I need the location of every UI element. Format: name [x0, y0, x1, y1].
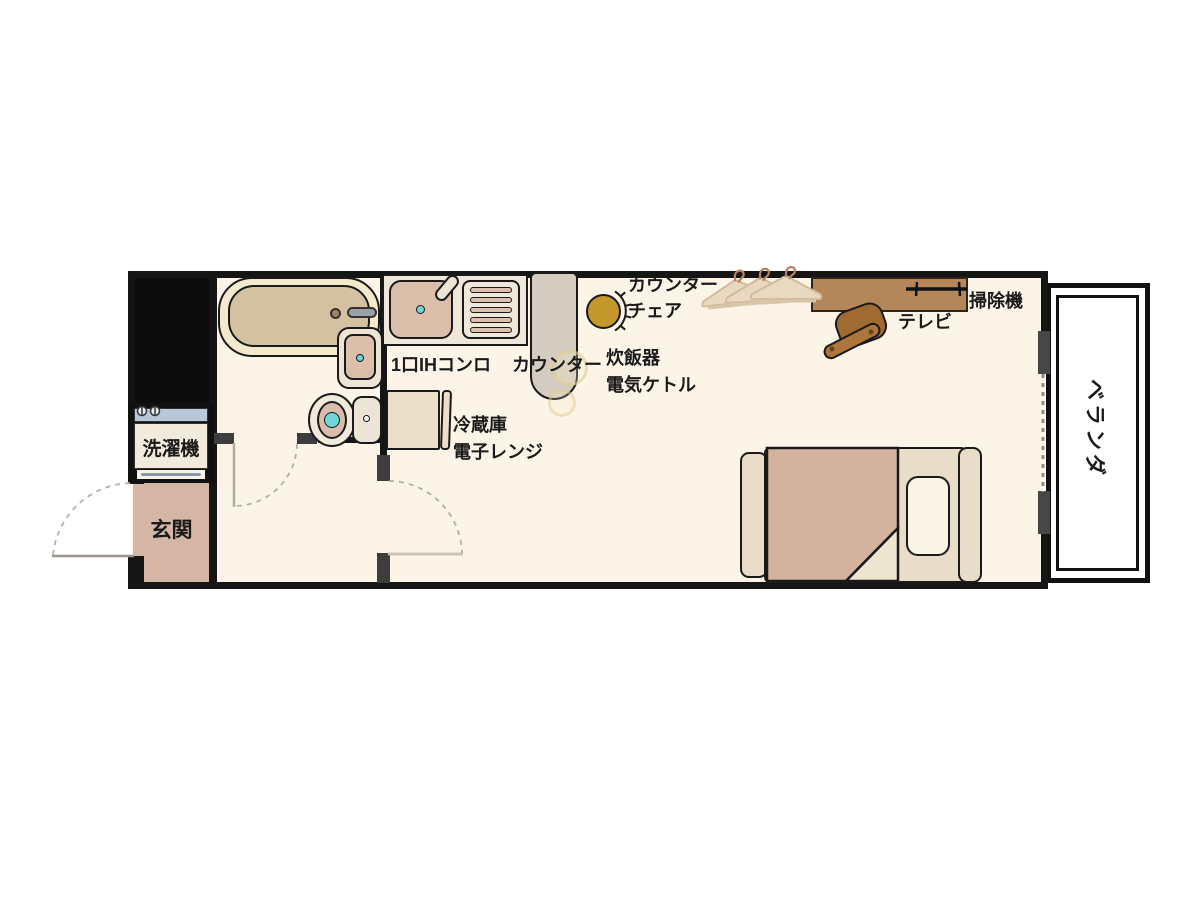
rice-cooker-label: 炊飯器	[606, 345, 696, 372]
ih-stove-grate	[470, 307, 512, 313]
desk-icon	[811, 277, 968, 312]
ih-stove-grate	[470, 317, 512, 323]
floor-plan: 洗濯機 玄関 1口IHコンロ カウンター カウンター チェア 炊飯器 電気ケトル…	[0, 0, 1200, 900]
pillow-icon	[906, 476, 950, 556]
counter-chair-label-line1: カウンター	[628, 272, 718, 298]
wall-right-upper	[1041, 271, 1048, 332]
entrance-jamb-bottom	[128, 556, 144, 586]
washing-machine-panel	[134, 408, 208, 422]
wall-bottom	[128, 582, 1048, 589]
microwave-label: 電子レンジ	[453, 439, 543, 466]
bathtub-drain	[330, 308, 341, 319]
toilet-water	[324, 412, 340, 428]
tv-label: テレビ	[898, 309, 952, 335]
vacuum-label: 掃除機	[969, 288, 1023, 314]
washing-machine-lid-handle	[141, 473, 201, 476]
ih-stove-grate	[470, 287, 512, 293]
room-door-jamb-top	[377, 455, 390, 481]
washing-machine-label: 洗濯機	[134, 437, 208, 463]
balcony-label: ベランダ	[1083, 374, 1107, 484]
washbasin-drain	[356, 354, 364, 362]
entrance-door-icon	[52, 483, 134, 556]
void-area	[133, 275, 211, 405]
bathtub-handrail	[347, 307, 377, 318]
electric-kettle-icon	[548, 389, 576, 417]
counter-label: カウンター	[512, 352, 602, 378]
entrance-label: 玄関	[133, 518, 210, 544]
counter-chair-label: カウンター チェア	[628, 272, 718, 324]
ih-stove-label: 1口IHコンロ	[391, 352, 491, 378]
ih-stove-grate	[470, 297, 512, 303]
wall-right-lower	[1041, 533, 1048, 589]
balcony-window-frame-top	[1038, 331, 1050, 374]
fridge-microwave-label: 冷蔵庫 電子レンジ	[453, 412, 543, 466]
refrigerator-label: 冷蔵庫	[453, 412, 543, 439]
balcony-window-frame-bottom	[1038, 491, 1050, 534]
refrigerator-door	[440, 390, 452, 450]
kitchen-sink-drain	[416, 305, 425, 314]
bed-headboard	[958, 447, 982, 583]
electric-kettle-label: 電気ケトル	[606, 372, 696, 399]
toilet-tank-button	[363, 415, 370, 422]
refrigerator-icon	[386, 390, 440, 450]
ih-stove-grate	[470, 327, 512, 333]
rice-cooker-kettle-label: 炊飯器 電気ケトル	[606, 345, 696, 399]
bathroom-door-jamb-left	[212, 433, 234, 444]
counter-chair-icon	[586, 294, 621, 329]
room-door-jamb-bottom	[377, 553, 390, 583]
counter-chair-label-line2: チェア	[628, 298, 718, 324]
